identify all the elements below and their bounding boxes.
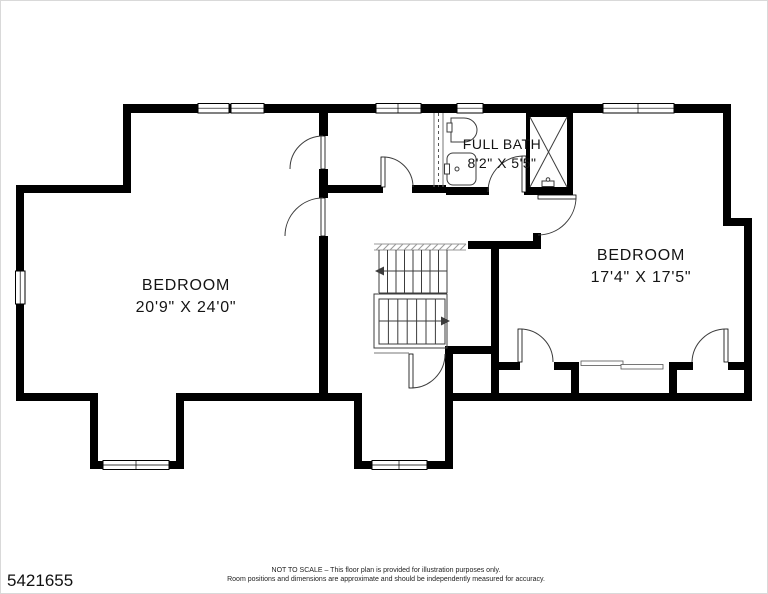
door-swing — [409, 354, 445, 388]
shower-icon — [528, 115, 569, 189]
window — [231, 104, 264, 114]
chimney-chase — [434, 113, 443, 187]
listing-number: 5421655 — [7, 571, 73, 590]
full-bath-label: FULL BATH — [463, 136, 541, 152]
door-swing — [692, 329, 728, 362]
closet-sliding-door — [581, 361, 663, 369]
floor-plan-canvas: FULL BATH 8'2" X 5'5" BEDROOM 20'9" X 24… — [1, 1, 767, 593]
disclaimer-line-2: Room positions and dimensions are approx… — [227, 576, 545, 583]
window — [372, 461, 427, 470]
window — [103, 461, 169, 470]
window — [376, 104, 421, 114]
bedroom-left-label: BEDROOM — [142, 277, 230, 294]
window — [603, 104, 674, 114]
bath-fixtures — [445, 115, 570, 189]
bedroom-right-label: BEDROOM — [597, 247, 685, 264]
door-swing — [538, 195, 576, 235]
door-swing — [285, 198, 325, 236]
staircase — [374, 244, 466, 353]
window — [198, 104, 229, 114]
disclaimer-line-1: NOT TO SCALE – This floor plan is provid… — [272, 567, 501, 574]
bedroom-right-dimensions: 17'4" X 17'5" — [591, 269, 692, 286]
window — [457, 104, 483, 114]
floor-plan-page: FULL BATH 8'2" X 5'5" BEDROOM 20'9" X 24… — [0, 0, 768, 594]
door-swing — [381, 157, 413, 187]
windows — [16, 104, 675, 470]
bedroom-left-dimensions: 20'9" X 24'0" — [136, 299, 237, 316]
door-swing — [290, 136, 325, 169]
stair-opening-hatch — [374, 244, 466, 250]
window — [16, 271, 26, 304]
door-swing — [518, 329, 553, 362]
full-bath-dimensions: 8'2" X 5'5" — [467, 155, 536, 171]
